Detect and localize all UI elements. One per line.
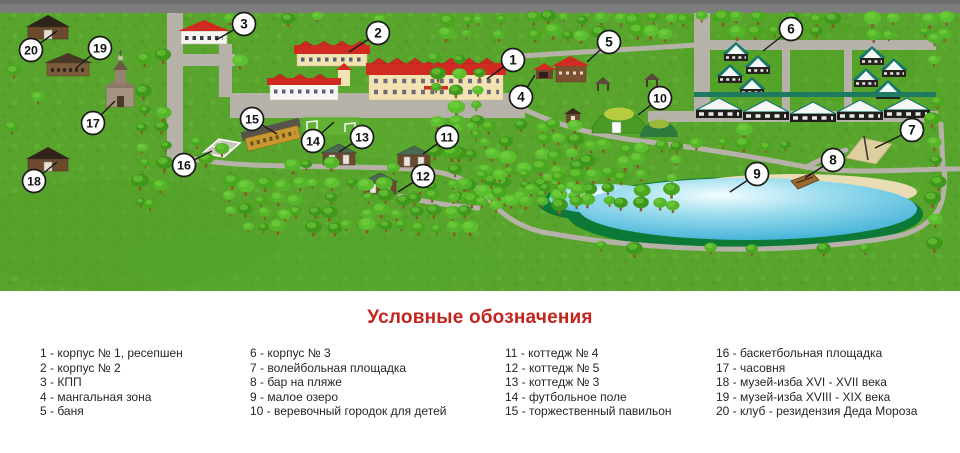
legend-item-3: 3 - КПП bbox=[40, 375, 183, 390]
legend-item-7: 7 - волейбольная площадка bbox=[250, 361, 446, 376]
svg-text:12: 12 bbox=[416, 170, 430, 184]
svg-text:15: 15 bbox=[245, 113, 259, 127]
legend-column-2: 6 - корпус № 37 - волейбольная площадка8… bbox=[250, 346, 446, 419]
svg-text:18: 18 bbox=[27, 175, 41, 189]
legend-item-4: 4 - мангальная зона bbox=[40, 390, 183, 405]
legend-item-1: 1 - корпус № 1, ресепшен bbox=[40, 346, 183, 361]
svg-text:11: 11 bbox=[440, 131, 453, 145]
legend-column-1: 1 - корпус № 1, ресепшен2 - корпус № 23 … bbox=[40, 346, 183, 419]
svg-text:6: 6 bbox=[787, 22, 795, 37]
legend-item-19: 19 - музей-изба XVIII - XIX века bbox=[716, 390, 917, 405]
corpus-3-row-houses bbox=[694, 92, 936, 122]
svg-text:4: 4 bbox=[517, 90, 525, 105]
legend-item-20: 20 - клуб - резидензия Деда Мороза bbox=[716, 404, 917, 419]
legend-item-15: 15 - торжественный павильон bbox=[505, 404, 672, 419]
svg-text:8: 8 bbox=[829, 153, 837, 168]
legend-item-18: 18 - музей-изба XVI - XVII века bbox=[716, 375, 917, 390]
legend-item-6: 6 - корпус № 3 bbox=[250, 346, 446, 361]
legend-item-13: 13 - коттедж № 3 bbox=[505, 375, 672, 390]
svg-text:7: 7 bbox=[908, 123, 916, 138]
legend-column-4: 16 - баскетбольная площадка17 - часовня1… bbox=[716, 346, 917, 419]
legend-item-9: 9 - малое озеро bbox=[250, 390, 446, 405]
legend-item-16: 16 - баскетбольная площадка bbox=[716, 346, 917, 361]
svg-text:19: 19 bbox=[93, 42, 107, 56]
svg-text:14: 14 bbox=[306, 135, 320, 149]
svg-text:16: 16 bbox=[177, 159, 191, 173]
svg-text:20: 20 bbox=[24, 44, 38, 58]
legend-column-3: 11 - коттедж № 412 - коттедж № 513 - кот… bbox=[505, 346, 672, 419]
legend-item-11: 11 - коттедж № 4 bbox=[505, 346, 672, 361]
legend-item-12: 12 - коттедж № 5 bbox=[505, 361, 672, 376]
svg-text:3: 3 bbox=[240, 17, 248, 32]
legend-item-2: 2 - корпус № 2 bbox=[40, 361, 183, 376]
legend: Условные обозначения 1 - корпус № 1, рес… bbox=[0, 291, 960, 453]
svg-text:2: 2 bbox=[374, 26, 382, 41]
svg-text:1: 1 bbox=[509, 53, 517, 68]
legend-item-8: 8 - бар на пляже bbox=[250, 375, 446, 390]
svg-text:5: 5 bbox=[605, 35, 613, 50]
legend-title: Условные обозначения bbox=[0, 307, 960, 329]
svg-text:10: 10 bbox=[653, 92, 667, 106]
svg-text:9: 9 bbox=[753, 167, 761, 182]
legend-item-10: 10 - веревочный городок для детей bbox=[250, 404, 446, 419]
svg-text:17: 17 bbox=[86, 117, 100, 131]
resort-map: 1234567891011121314151617181920 bbox=[0, 0, 960, 291]
legend-item-14: 14 - футбольное поле bbox=[505, 390, 672, 405]
legend-item-5: 5 - баня bbox=[40, 404, 183, 419]
legend-item-17: 17 - часовня bbox=[716, 361, 917, 376]
svg-text:13: 13 bbox=[355, 131, 369, 145]
